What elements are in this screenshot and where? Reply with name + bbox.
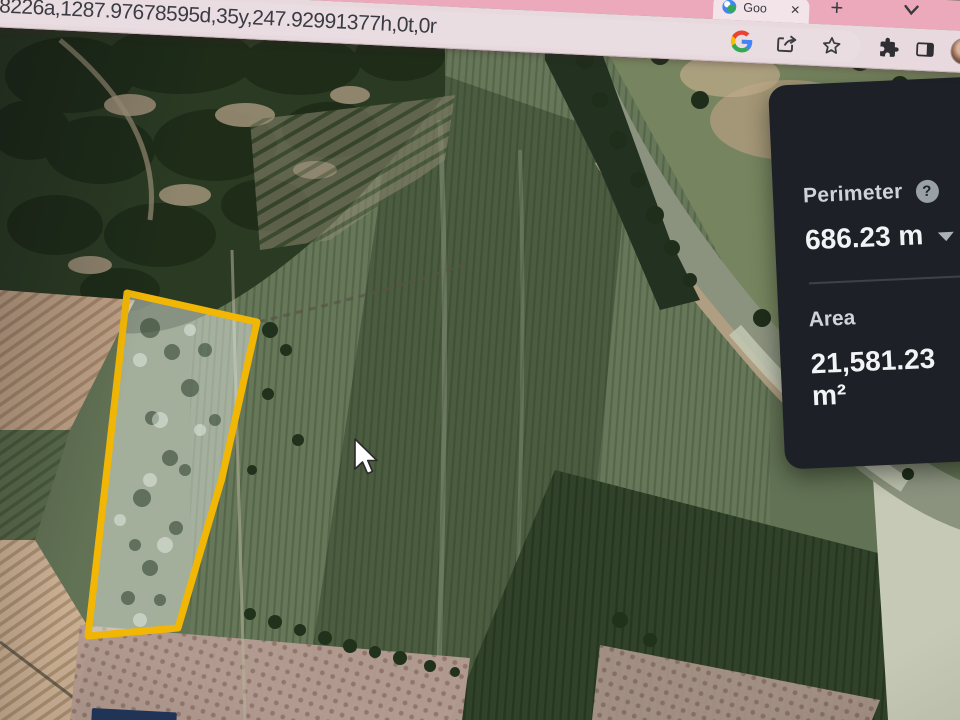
area-value: 21,581.23 m²: [810, 342, 960, 413]
new-tab-button[interactable]: +: [830, 0, 844, 21]
google-g-icon[interactable]: [730, 30, 753, 53]
area-value-row[interactable]: 21,581.23 m²: [810, 340, 960, 412]
help-icon[interactable]: ?: [915, 179, 939, 203]
bookmark-star-icon[interactable]: [820, 34, 843, 57]
share-icon[interactable]: [774, 31, 799, 56]
tab-close-icon[interactable]: ✕: [790, 3, 801, 17]
tab-title: Goo: [743, 0, 776, 15]
perimeter-unit-chevron-icon[interactable]: [938, 231, 954, 241]
side-panel-icon[interactable]: [914, 39, 936, 61]
perimeter-label: Perimeter: [803, 180, 904, 208]
screen-photo: Perimeter ? 686.23 m Area 21,581.23 m² G…: [0, 0, 960, 720]
measure-panel: Perimeter ? 686.23 m Area 21,581.23 m²: [768, 76, 960, 469]
perimeter-value-row[interactable]: 686.23 m: [804, 216, 960, 256]
chevron-down-icon[interactable]: [901, 1, 922, 20]
perimeter-value: 686.23 m: [804, 219, 924, 256]
area-label: Area: [808, 300, 960, 332]
profile-avatar[interactable]: [950, 37, 960, 65]
extensions-puzzle-icon[interactable]: [878, 37, 900, 59]
earth-favicon-icon: [722, 0, 737, 14]
panel-divider: [809, 275, 960, 285]
